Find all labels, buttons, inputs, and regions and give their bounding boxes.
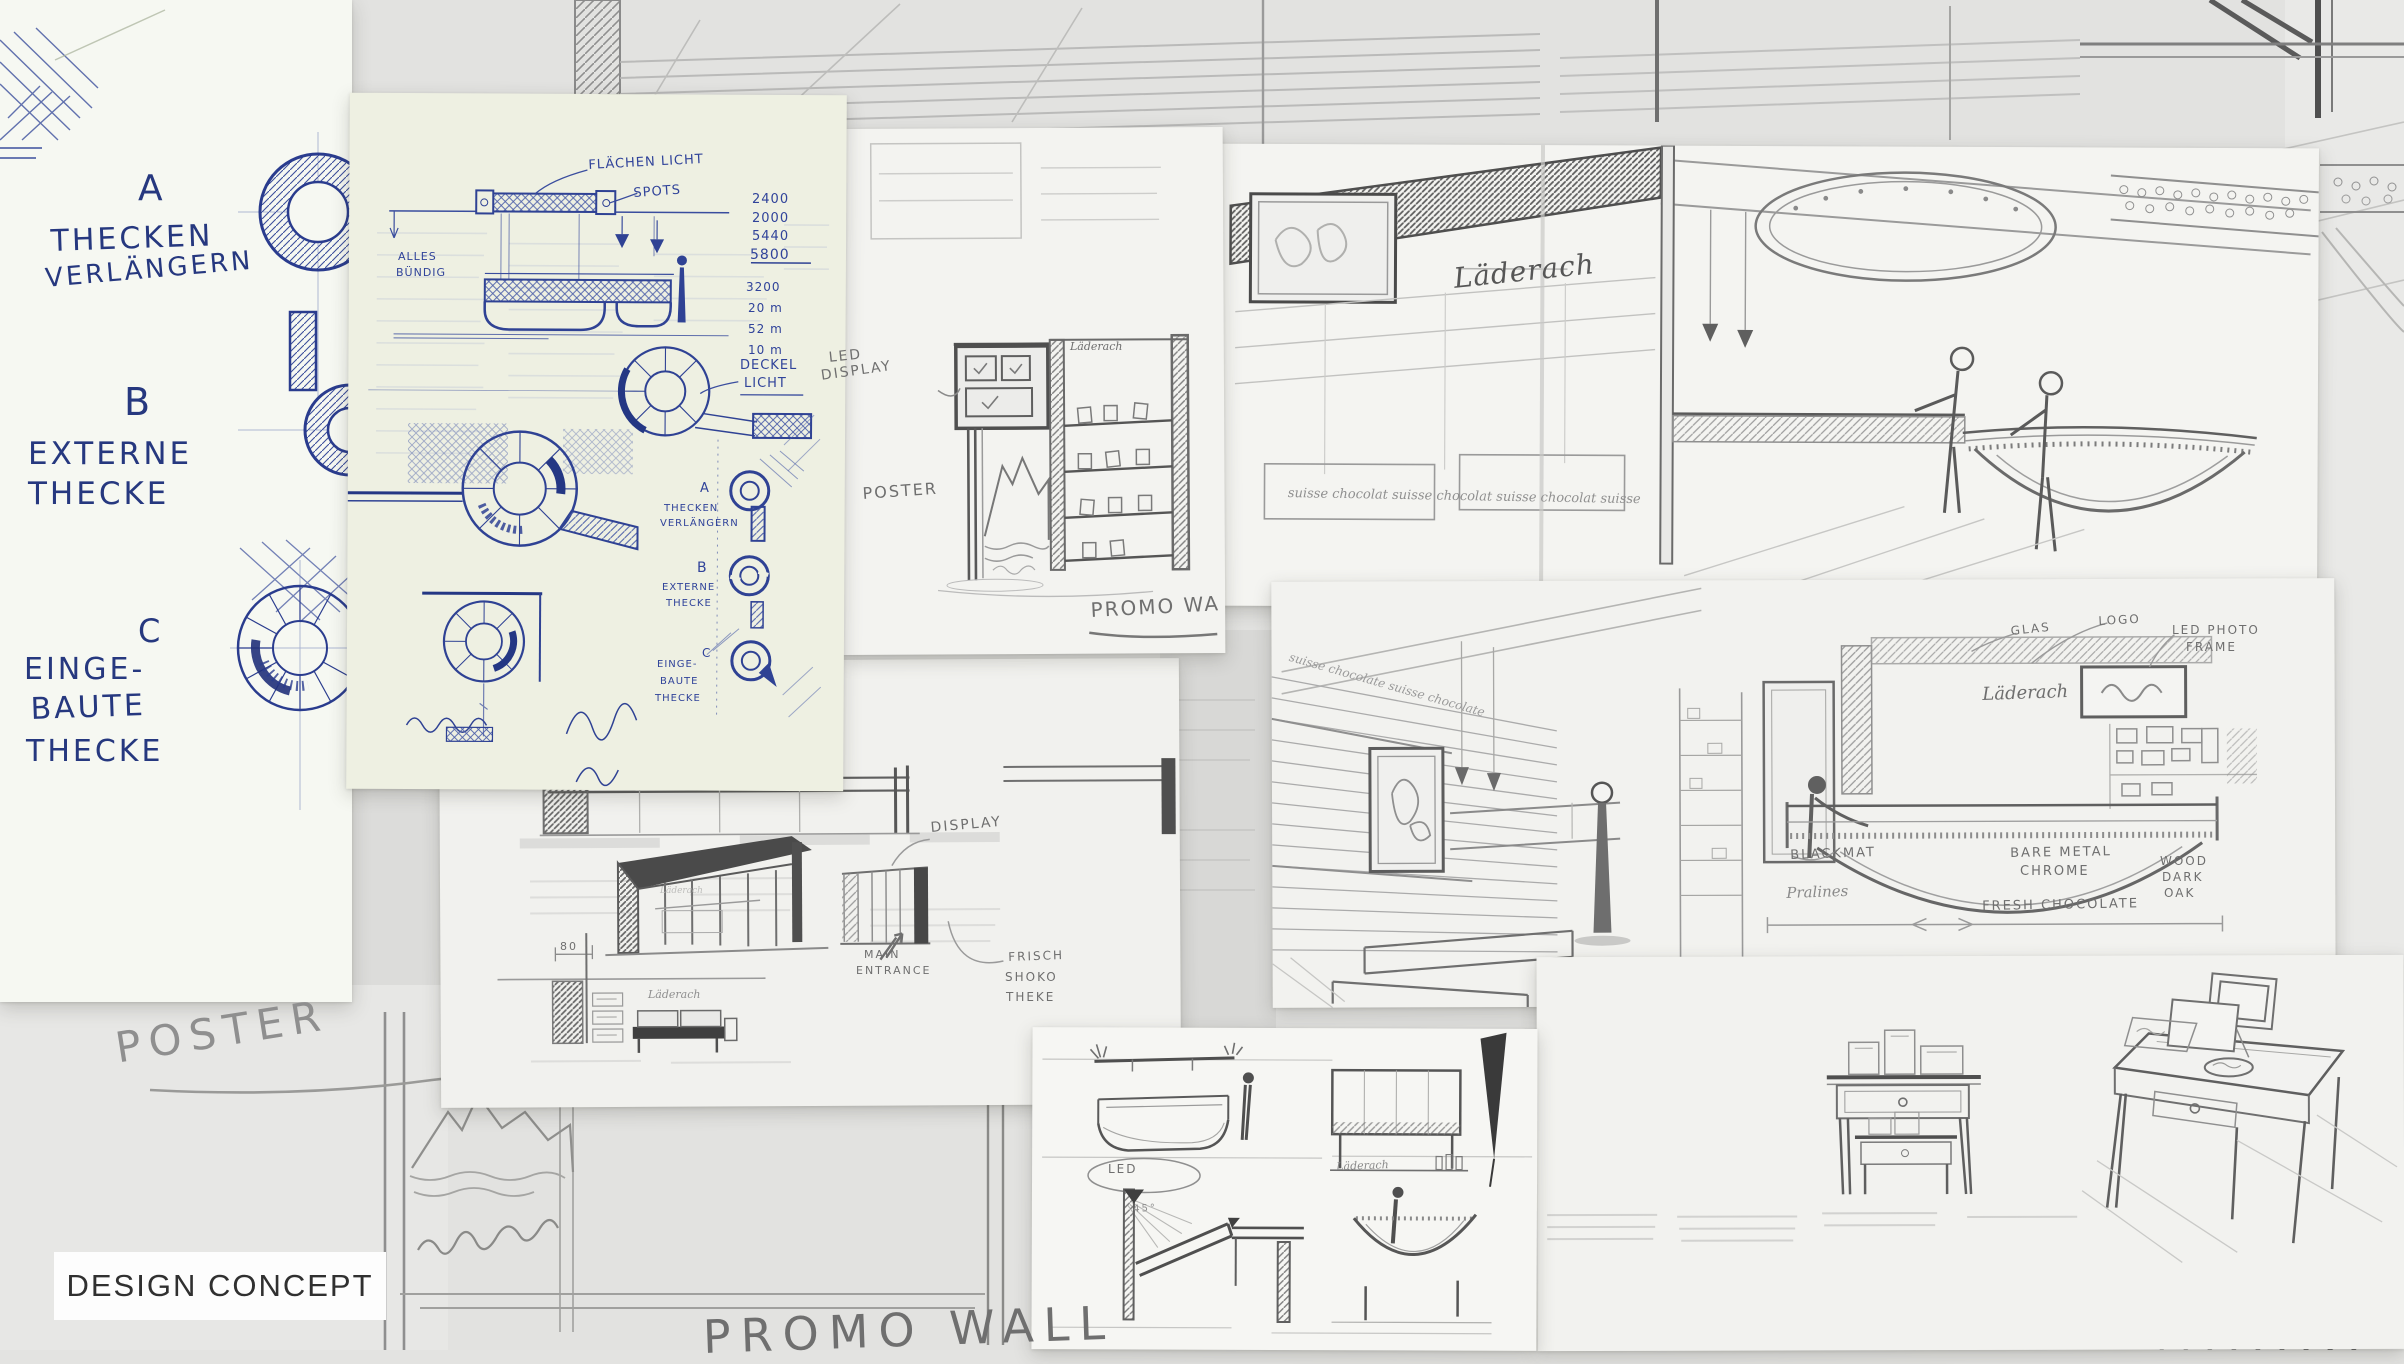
laderach-shelf-brand: Läderach xyxy=(1070,340,1122,353)
option-b-glyph xyxy=(730,557,768,628)
store-brand-small: Läderach xyxy=(660,886,703,896)
option-a-glyph xyxy=(730,451,803,541)
pralines-label: Pralines xyxy=(1786,882,1849,902)
display-table-front xyxy=(1827,1030,1981,1194)
plan-option-c-letter: C xyxy=(702,646,711,660)
dim-value: 52 m xyxy=(748,322,783,336)
alles-buendig-label: ALLES xyxy=(398,250,437,263)
plan-option-c-label2: BAUTE xyxy=(660,676,698,687)
option-c-label2: BAUTE xyxy=(30,688,146,727)
promo-shelf xyxy=(1050,335,1189,570)
wood-label2: DARK xyxy=(2162,870,2203,884)
option-b-label2: THECKE xyxy=(28,476,169,512)
matterhorn-poster xyxy=(982,428,1049,578)
plan-round-counter xyxy=(421,593,542,737)
interior-sketch xyxy=(1271,578,2335,1008)
bench-sketch xyxy=(633,1010,737,1053)
deckel-licht-label: DECKEL xyxy=(740,358,797,373)
main-entrance-label: MAIN xyxy=(864,948,901,961)
option-c-label: EINGE- xyxy=(24,652,145,687)
wood-label: WOOD xyxy=(2160,854,2208,868)
paper-tower-sketch xyxy=(841,127,1226,655)
option-b-label: EXTERNE xyxy=(28,436,192,472)
dim-value: 5440 xyxy=(752,229,789,244)
logo-label: LOGO xyxy=(2098,612,2141,628)
page-title: DESIGN CONCEPT xyxy=(66,1268,373,1304)
product-boxes xyxy=(2117,727,2218,796)
paper-interior-sketch xyxy=(1271,578,2335,1008)
display-table-perspective xyxy=(2107,973,2344,1244)
frisch-label3: THEKE xyxy=(1006,990,1055,1004)
rounded-counter xyxy=(1090,1042,1242,1151)
display-case-elevation xyxy=(840,867,930,943)
counter-plan-a xyxy=(238,132,352,397)
led-photo-frame-label: LED PHOTO xyxy=(2172,623,2260,637)
option-a-letter: A xyxy=(138,168,166,209)
paper-tables-sketch xyxy=(1536,955,2404,1351)
tables-sketch xyxy=(1536,955,2404,1351)
plan-option-b-letter: B xyxy=(697,560,708,576)
counter-brand: Läderach xyxy=(1336,1158,1389,1173)
plan-option-a-label2: VERLÄNGERN xyxy=(660,518,739,529)
deckel-licht-label2: LICHT xyxy=(744,376,787,391)
option-c-label3: THECKE xyxy=(26,734,163,769)
store-perspective-sketch xyxy=(1204,144,2319,611)
person-figure xyxy=(2010,372,2062,551)
blackmat-label: BLACKMAT xyxy=(1790,845,1876,863)
design-concept-collage: A THECKEN VERLÄNGERN B EXTERNE THECKE C … xyxy=(0,0,2404,1350)
angle-label: 45° xyxy=(1133,1203,1157,1215)
plan-option-a-letter: A xyxy=(700,481,710,496)
alles-buendig-label2: BÜNDIG xyxy=(396,266,446,279)
person-figure xyxy=(1574,783,1631,946)
plan-option-a-label: THECKEN xyxy=(664,503,718,514)
plan-option-b-label2: THECKE xyxy=(666,598,712,609)
design-concept-label: DESIGN CONCEPT xyxy=(54,1252,386,1320)
paper-store-perspective xyxy=(1204,144,2319,611)
sign-stack xyxy=(593,993,623,1042)
dim-80-label: 80 xyxy=(560,940,578,953)
wood-label3: OAK xyxy=(2164,886,2195,900)
bare-metal-label2: CHROME xyxy=(2020,864,2090,879)
led-tower xyxy=(946,344,1051,592)
dim-value: 10 m xyxy=(748,343,783,357)
frisch-label: FRISCH xyxy=(1008,948,1064,964)
elevation-sign-small: Läderach xyxy=(648,988,700,1001)
bare-metal-label: BARE METAL xyxy=(2010,844,2112,861)
plan-option-c-label: EINGE- xyxy=(657,659,697,670)
dim-value: 2000 xyxy=(752,211,789,226)
fresh-chocolate-label: FRESH CHOCOLATE xyxy=(1982,896,2139,914)
frisch-label2: SHOKO xyxy=(1005,970,1058,984)
laderach-wall-brand: Läderach xyxy=(1982,681,2069,705)
dim-value: 3200 xyxy=(746,280,781,294)
person-figure xyxy=(1242,1072,1254,1140)
dim-value: 20 m xyxy=(748,301,783,315)
counter-plan-b xyxy=(238,385,352,475)
option-b-letter: B xyxy=(124,380,153,424)
tower-sketch xyxy=(841,127,1226,655)
dark-wedge xyxy=(1480,1033,1506,1159)
plan-option-c-label3: THECKE xyxy=(655,693,701,704)
led-photo-frame-label2: FRAME xyxy=(2186,640,2237,654)
dim-value: 5800 xyxy=(750,247,790,263)
led-label: LED xyxy=(1108,1162,1138,1176)
plan-option-b-label: EXTERNE xyxy=(662,582,715,593)
dim-value: 2400 xyxy=(752,192,789,207)
tall-display-counter xyxy=(1330,1070,1493,1323)
main-entrance-label2: ENTRANCE xyxy=(856,964,931,977)
option-c-letter: C xyxy=(138,612,163,650)
